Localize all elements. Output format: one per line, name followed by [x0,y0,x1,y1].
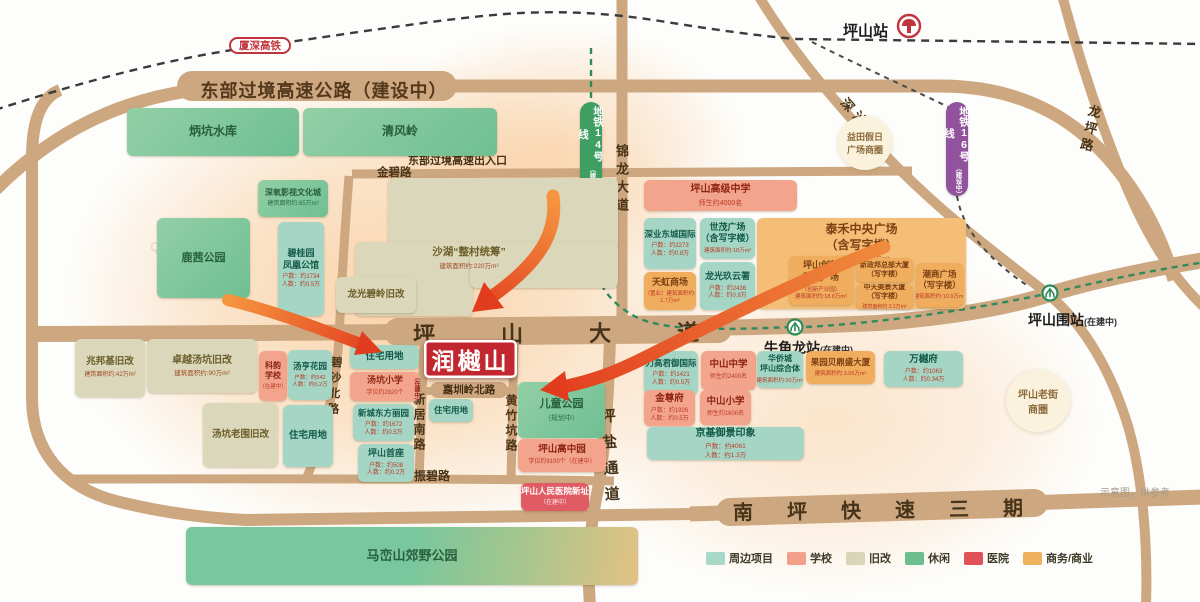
disclaimer-note: 示意图，供参考 [1100,484,1170,499]
block-title: 坪山首座 [368,448,404,460]
map-block-jinzunfu: 金尊府户数：约1926人数：约0.5万 [644,390,695,426]
map-block-laowei: 汤坑老围旧改 [203,403,278,467]
block-subtext: 户数：约2273 [651,243,688,251]
block-subtext: 师生约1600名 [707,411,744,419]
block-subtext: 建筑面积约:18.8万m² [795,294,847,301]
block-title: （含写字楼） [825,238,897,254]
legend-item-2: 旧改 [846,550,891,566]
block-title: 卓越汤坑旧改 [172,354,232,367]
block-title: 果园贝鼎盛大厦 [811,357,871,368]
block-title: 沙湖“整村统筹” [432,246,506,260]
block-subtext: 户数：约542 [294,375,325,382]
map-block-jingji: 京基御景印象户数：约4061人数：约1.3万 [647,427,804,460]
map-block-tangheng: 汤亨花园户数：约542人数：约0.2万 [288,350,332,400]
block-subtext: 人数：约0.8万 [651,251,689,259]
map-block-shimao: 世茂广场（含写字楼）建筑面积约:18万m² [700,218,755,259]
block-subtext: 人数：约0.2万 [367,470,405,478]
block-subtext: 人数：约0.2万 [292,382,327,389]
block-subtext: 建筑面积约:18万m² [704,248,751,255]
block-status-vertical: （在建中） [411,374,419,401]
map-block-longguang_biling: 龙光碧岭旧改 [336,277,416,313]
block-title: 清风岭 [382,124,418,140]
block-title: 住宅用地 [434,405,468,416]
map-block-xinzhengbang: 新政邦总部大厦（写字楼） [856,258,913,282]
block-title: （写字楼） [867,270,902,279]
legend-swatch [706,552,725,565]
map-block-biguiyuan: 碧桂园凤凰公馆户数：约1734人数：约0.5万 [278,222,324,316]
block-title: 深氧影视文化城 [265,188,321,198]
block-title: 力高君御国际 [645,358,696,369]
map-block-maluan: 马峦山郊野公园 [186,527,638,585]
block-subtext: 师生约2400名 [710,374,747,382]
block-subtext: 户数：约1421 [652,372,689,380]
map-block-zhaobangji: 兆邦基旧改建筑面积约:42万m² [75,339,145,397]
map-block-qingfengling: 清风岭 [303,108,497,156]
map-block-guoyuan: 果园贝鼎盛大厦建筑面积约:3.06万m² [806,351,875,384]
map-block-tianhong: 天虹商场（置业）建筑面积约:1.7万m² [644,272,696,310]
map-block-tangkeng_xiaoxue: 汤坑小学学位约2820个（在建中） [350,372,420,401]
block-subtext: 建筑面积约:42万m² [84,372,135,380]
map-block-shouzuo: 坪山首座户数：约508人数：约0.2万 [358,444,414,482]
legend-label: 周边项目 [729,550,773,566]
block-subtext: 1.7万m² [660,298,680,305]
block-title: 华侨城 [768,354,792,364]
block-title: 住宅用地 [365,351,403,363]
block-subtext: 学位约9100个（在建中） [528,459,595,467]
block-title: 坪山高中园 [538,444,586,456]
legend-swatch [787,552,806,565]
block-title: 中天美景大厦 [864,284,906,292]
legend-item-1: 学校 [787,550,832,566]
block-title: 世茂广场 [709,222,745,234]
block-title: 汤亨花园 [293,361,327,372]
map-block-zhuoyue: 卓越汤坑旧改建筑面积约:90万m² [147,339,257,393]
block-subtext: 户数：约1672 [365,422,402,430]
map-block-xincheng: 新城东方丽园户数：约1672人数：约0.5万 [353,404,414,441]
map-block-ligao: 力高君御国际户数：约1421人数：约0.5万 [644,351,698,395]
legend-item-4: 医院 [964,550,1009,566]
block-subtext: 人数：约0.5万 [282,282,320,290]
block-title: 鹿茜公园 [182,251,226,265]
block-subtext: 户数：约1063 [905,369,942,377]
map-legend: 周边项目学校旧改休闲医院商务/商业 [706,550,1107,566]
map-block-gaoji_zhongxue: 坪山高级中学师生约4000名 [644,180,797,211]
legend-swatch [964,552,983,565]
map-block-shahu: 沙湖“整村统筹”建筑面积约:220万m² [408,241,530,277]
block-subtext: 人数：约0.34万 [903,377,945,385]
block-subtext: 建筑面积约:65万m² [267,201,318,209]
map-block-zhongtian: 中天美景大厦（写字楼）建筑面积约:3.1万m² [856,284,913,309]
map-block-chaoshang: 潮商广场（写字楼）建筑面积约:10.9万m² [916,263,963,307]
block-subtext: （规划中） [544,414,579,423]
block-title: 潮商广场 [922,269,956,280]
map-block-zhuzhai_n: 住宅用地 [350,345,419,369]
map-block-keyun: 科韵学校（在建中） [259,351,287,401]
block-title: 儿童公园 [540,397,584,411]
block-title: 泰禾中央广场 [825,222,897,238]
block-title: 炳坑水库 [189,124,237,140]
block-subtext: 人数：约0.5万 [652,380,690,388]
block-subtext: 人数：约1.3万 [705,452,747,460]
block-title: 中山中学 [709,359,747,371]
block-subtext: 建筑面积约:220万m² [439,263,498,271]
map-block-shenye: 深业东城国际户数：约2273人数：约0.8万 [644,218,696,269]
block-title: 学校 [265,371,281,381]
legend-label: 休闲 [928,550,950,566]
map-block-ertong: 儿童公园（规划中） [518,382,605,438]
block-title: 凤凰公馆 [283,260,319,272]
block-title: 龙光碧岭旧改 [347,289,404,301]
block-title: 坪山综合体 [760,364,800,374]
block-title: 马峦山郊野公园 [366,548,457,565]
block-title: 万樾府 [909,354,938,366]
block-title: （写字楼） [918,280,961,291]
block-subtext: 人数：约0.5万 [364,430,402,438]
location-map: 东部过境高速公路（建设中） 东部过境高速出入口 金碧路 坪山大道 南坪快速三期 … [0,0,1200,602]
map-block-renmin_hospital: 坪山人民医院新址（在建中） [521,483,589,511]
legend-item-0: 周边项目 [706,550,773,566]
map-block-chuangxin: 坪山创新科技广场（创新产业园）建筑面积约:18.8万m² [789,256,853,305]
legend-swatch [905,552,924,565]
block-subtext: 建筑面积约:90万m² [174,370,230,378]
legend-swatch [846,552,865,565]
block-title: 中山小学 [706,396,744,408]
block-title: 汤坑小学 [367,375,403,387]
block-title: 京基御景印象 [696,427,756,440]
legend-swatch [1023,552,1042,565]
map-block-luxi_park: 鹿茜公园 [157,218,250,298]
block-subtext: 学位约2820个 [366,390,403,398]
block-title: 新城东方丽园 [358,408,409,419]
block-subtext: 建筑面积约:10.9万m² [916,294,963,301]
legend-item-3: 休闲 [905,550,950,566]
block-title: 科技广场 [803,272,839,284]
map-block-zs_zhongxue: 中山中学师生约2400名 [701,351,756,390]
block-title: 天虹商场 [652,277,688,289]
block-subtext: 户数：约1926 [651,408,688,416]
block-subtext: （创新产业园） [802,287,841,294]
block-title: 金尊府 [655,393,684,405]
block-subtext: 建筑面积约:3.06万m² [815,371,867,378]
map-block-jiuyunzhu: 龙光玖云著户数：约2436人数：约0.9万 [700,262,755,310]
block-title: 兆邦基旧改 [86,356,134,368]
legend-label: 学校 [810,550,832,566]
legend-label: 医院 [987,550,1009,566]
block-subtext: 户数：约4061 [705,443,745,451]
map-block-zs_xiaoxue: 中山小学师生约1600名 [700,390,751,425]
block-title: 汤坑老围旧改 [212,429,269,441]
block-subtext: （在建中） [540,500,570,508]
block-title: 坪山人民医院新址 [521,486,589,497]
legend-label: 旧改 [869,550,891,566]
block-title: 科韵 [265,361,281,371]
map-blocks-layer: 炳坑水库清风岭深氧影视文化城建筑面积约:65万m²鹿茜公园碧桂园凤凰公馆户数：约… [0,0,1200,602]
shahu-renewal-zone [388,178,618,250]
block-title: 坪山创新 [803,260,839,272]
block-title: 深业东城国际 [645,229,696,240]
block-title: 住宅用地 [289,430,327,442]
block-title: 新政邦总部大厦 [860,261,909,270]
block-title: （含写字楼） [701,233,755,245]
map-block-gaozhongyuan: 坪山高中园学位约9100个（在建中） [518,439,606,472]
map-block-zhuzhai_w: 住宅用地 [283,405,333,467]
map-block-yingshi: 深氧影视文化城建筑面积约:65万m² [258,180,328,217]
block-title: 碧桂园 [287,248,314,260]
map-block-bingkeng: 炳坑水库 [127,108,299,156]
block-subtext: （在建中） [259,384,287,391]
map-block-wanyuefu: 万樾府户数：约1063人数：约0.34万 [884,351,963,387]
block-title: 坪山高级中学 [691,183,751,196]
block-subtext: 师生约4000名 [699,199,743,208]
block-title: 龙光玖云著 [705,271,750,283]
project-callout-runyueshan: 润樾山 [424,340,517,378]
map-block-hqc: 华侨城坪山综合体建筑面积约:20万m² [757,351,803,388]
block-subtext: 人数：约0.5万 [650,416,688,424]
block-subtext: 建筑面积约:20万m² [757,378,803,385]
block-subtext: 人数：约0.9万 [708,293,746,301]
legend-label: 商务/商业 [1046,550,1093,566]
block-title: （写字楼） [867,292,902,301]
legend-item-5: 商务/商业 [1023,550,1093,566]
map-block-zhuzhai_c: 住宅用地 [429,399,473,422]
block-subtext: 建筑面积约:3.1万m² [862,304,906,309]
